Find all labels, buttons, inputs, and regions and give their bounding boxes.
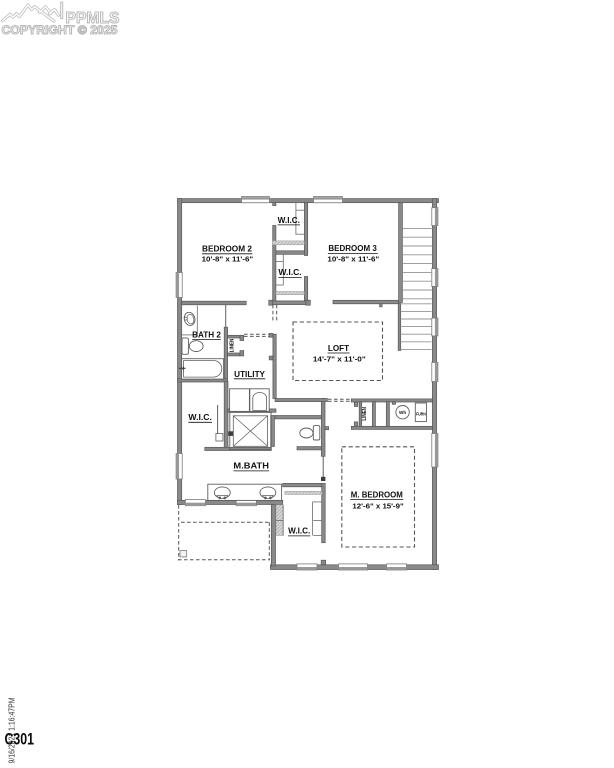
svg-text:UTILITY: UTILITY [234, 370, 265, 379]
svg-text:LINEN: LINEN [362, 407, 368, 421]
svg-text:9/16/2021 1:16:47PM: 9/16/2021 1:16:47PM [7, 698, 17, 764]
svg-text:W.I.C.: W.I.C. [278, 216, 300, 225]
svg-text:Wh: Wh [399, 410, 406, 415]
svg-text:10'-8" x 11'-6": 10'-8" x 11'-6" [202, 255, 254, 264]
svg-text:LINEN: LINEN [229, 339, 235, 353]
svg-text:BEDROOM 2: BEDROOM 2 [202, 245, 253, 254]
svg-text:10'-8" x 11'-6": 10'-8" x 11'-6" [327, 254, 379, 263]
svg-text:BEDROOM 3: BEDROOM 3 [328, 244, 377, 253]
svg-text:COPYRIGHT © 2025: COPYRIGHT © 2025 [2, 25, 119, 37]
svg-text:W.I.C.: W.I.C. [278, 268, 301, 277]
svg-text:M.BATH: M.BATH [233, 462, 269, 471]
svg-text:FURN: FURN [416, 411, 426, 416]
svg-text:W.I.C.: W.I.C. [188, 413, 212, 422]
svg-text:BATH 2: BATH 2 [192, 330, 221, 339]
svg-text:LOFT: LOFT [328, 344, 349, 353]
svg-text:14'-7" x 11'-0": 14'-7" x 11'-0" [313, 354, 366, 363]
svg-text:M. BEDROOM: M. BEDROOM [351, 490, 403, 499]
svg-text:12'-6" x 15'-9": 12'-6" x 15'-9" [352, 502, 404, 511]
svg-text:W.I.C.: W.I.C. [288, 527, 310, 536]
